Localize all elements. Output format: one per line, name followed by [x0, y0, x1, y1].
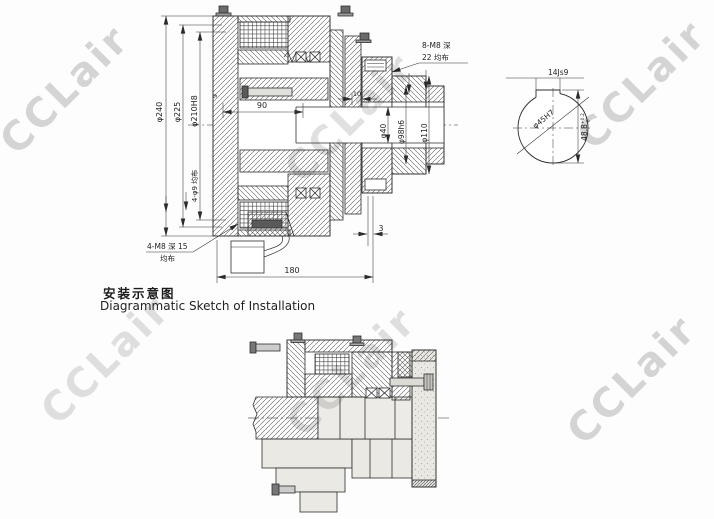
dim-phi240-label: φ240: [155, 102, 164, 123]
dim-phi210-label: φ210H8: [190, 95, 199, 127]
note-mount-holes-label: 4-φ9 均布: [190, 170, 199, 202]
mounting-bolt-head: [424, 374, 433, 390]
caption-english: Diagrammatic Sketch of Installation: [100, 299, 315, 313]
keyway-tol-upper: +0.2: [580, 113, 586, 124]
m8-tapped-hole: [365, 60, 386, 71]
technical-drawing-page: φ240 φ225 φ210H8 9 90 10 φ40 φ98h6: [0, 0, 714, 519]
note-back-holes-line1: 4-M8 深 15: [147, 242, 188, 251]
lead-wire: [264, 233, 289, 257]
coil-winding-top: [240, 22, 288, 48]
clutch-section-view: φ240 φ225 φ210H8 9 90 10 φ40 φ98h6: [146, 6, 468, 283]
keyway-height-value: 48.8: [580, 124, 589, 141]
keyway-height-label: 48.8+0.20: [580, 113, 592, 141]
note-flange-holes-line1: 8-M8 深: [422, 41, 451, 50]
installation-view: [248, 333, 450, 512]
input-shaft: [253, 397, 420, 439]
shaft-end-view: φ45H7 14Js9 48.8+0.20: [506, 68, 593, 168]
top-fixing-bolts: [216, 6, 353, 16]
keyway-width-label: 14Js9: [548, 68, 569, 77]
dim-9-label: 9: [211, 94, 219, 98]
keyway-tol-lower: 0: [586, 119, 592, 122]
drawing-canvas: φ240 φ225 φ210H8 9 90 10 φ40 φ98h6: [0, 0, 714, 519]
install-stator: [250, 333, 392, 397]
note-flange-holes-line2: 22 均布: [422, 52, 449, 62]
output-hub-blocks: [262, 439, 412, 512]
dim-phi110-label: φ110: [420, 123, 429, 142]
dim-180-label: 180: [284, 266, 299, 275]
note-back-holes-line2: 均布: [160, 253, 175, 263]
dim-phi40-label: φ40: [379, 124, 388, 139]
dim-10-label: 10: [353, 90, 361, 98]
install-coil: [315, 354, 349, 374]
dim-phi98-label: φ98h6: [397, 120, 406, 144]
adjust-bolt: [242, 86, 248, 98]
dim-90-label: 90: [257, 101, 267, 110]
mounting-bolt-shank: [390, 378, 424, 386]
dim-gap3-label: 3: [379, 224, 384, 233]
dim-phi225-label: φ225: [173, 102, 182, 123]
